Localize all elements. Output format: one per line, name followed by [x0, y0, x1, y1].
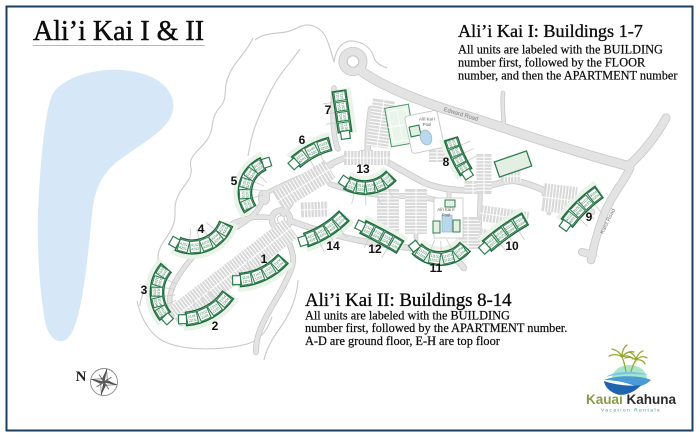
- svg-text:Pool: Pool: [442, 213, 450, 218]
- svg-text:6: 6: [299, 133, 306, 147]
- svg-text:7: 7: [325, 103, 332, 117]
- svg-text:5202: 5202: [245, 190, 250, 198]
- svg-text:Ali’i Kai I & II: Ali’i Kai I & II: [33, 16, 204, 47]
- svg-text:10: 10: [505, 239, 519, 253]
- svg-text:2: 2: [212, 319, 219, 333]
- svg-text:A-D are ground floor, E-H are: A-D are ground floor, E-H are top floor: [305, 334, 500, 348]
- svg-text:14: 14: [326, 239, 340, 253]
- svg-text:13: 13: [356, 162, 370, 176]
- svg-text:Kauai Kahuna: Kauai Kahuna: [586, 392, 677, 407]
- svg-text:number first, followed by the: number first, followed by the FLOOR: [458, 55, 646, 69]
- svg-text:5: 5: [231, 174, 238, 188]
- svg-text:Ali’i Kai I: Buildings 1-7: Ali’i Kai I: Buildings 1-7: [458, 21, 643, 41]
- svg-text:8: 8: [443, 155, 450, 169]
- svg-text:Ali’i Kai II: Ali’i Kai II: [437, 207, 454, 212]
- svg-text:11: 11: [430, 261, 443, 275]
- svg-text:1: 1: [261, 252, 268, 266]
- svg-text:Ali’i Kai I: Ali’i Kai I: [419, 117, 435, 122]
- svg-text:N: N: [76, 369, 87, 385]
- svg-text:4202: 4202: [191, 247, 199, 252]
- svg-text:All units are labeled with the: All units are labeled with the BUILDING: [458, 43, 663, 57]
- svg-text:12: 12: [368, 242, 382, 256]
- svg-text:Vacation Rentals: Vacation Rentals: [601, 408, 661, 413]
- svg-text:3203: 3203: [153, 288, 157, 296]
- svg-text:3: 3: [141, 283, 148, 297]
- svg-text:Pool: Pool: [423, 122, 431, 127]
- svg-text:4: 4: [198, 222, 205, 236]
- svg-text:9: 9: [586, 210, 593, 224]
- svg-text:number, and then the APARTMENT: number, and then the APARTMENT number: [458, 68, 677, 82]
